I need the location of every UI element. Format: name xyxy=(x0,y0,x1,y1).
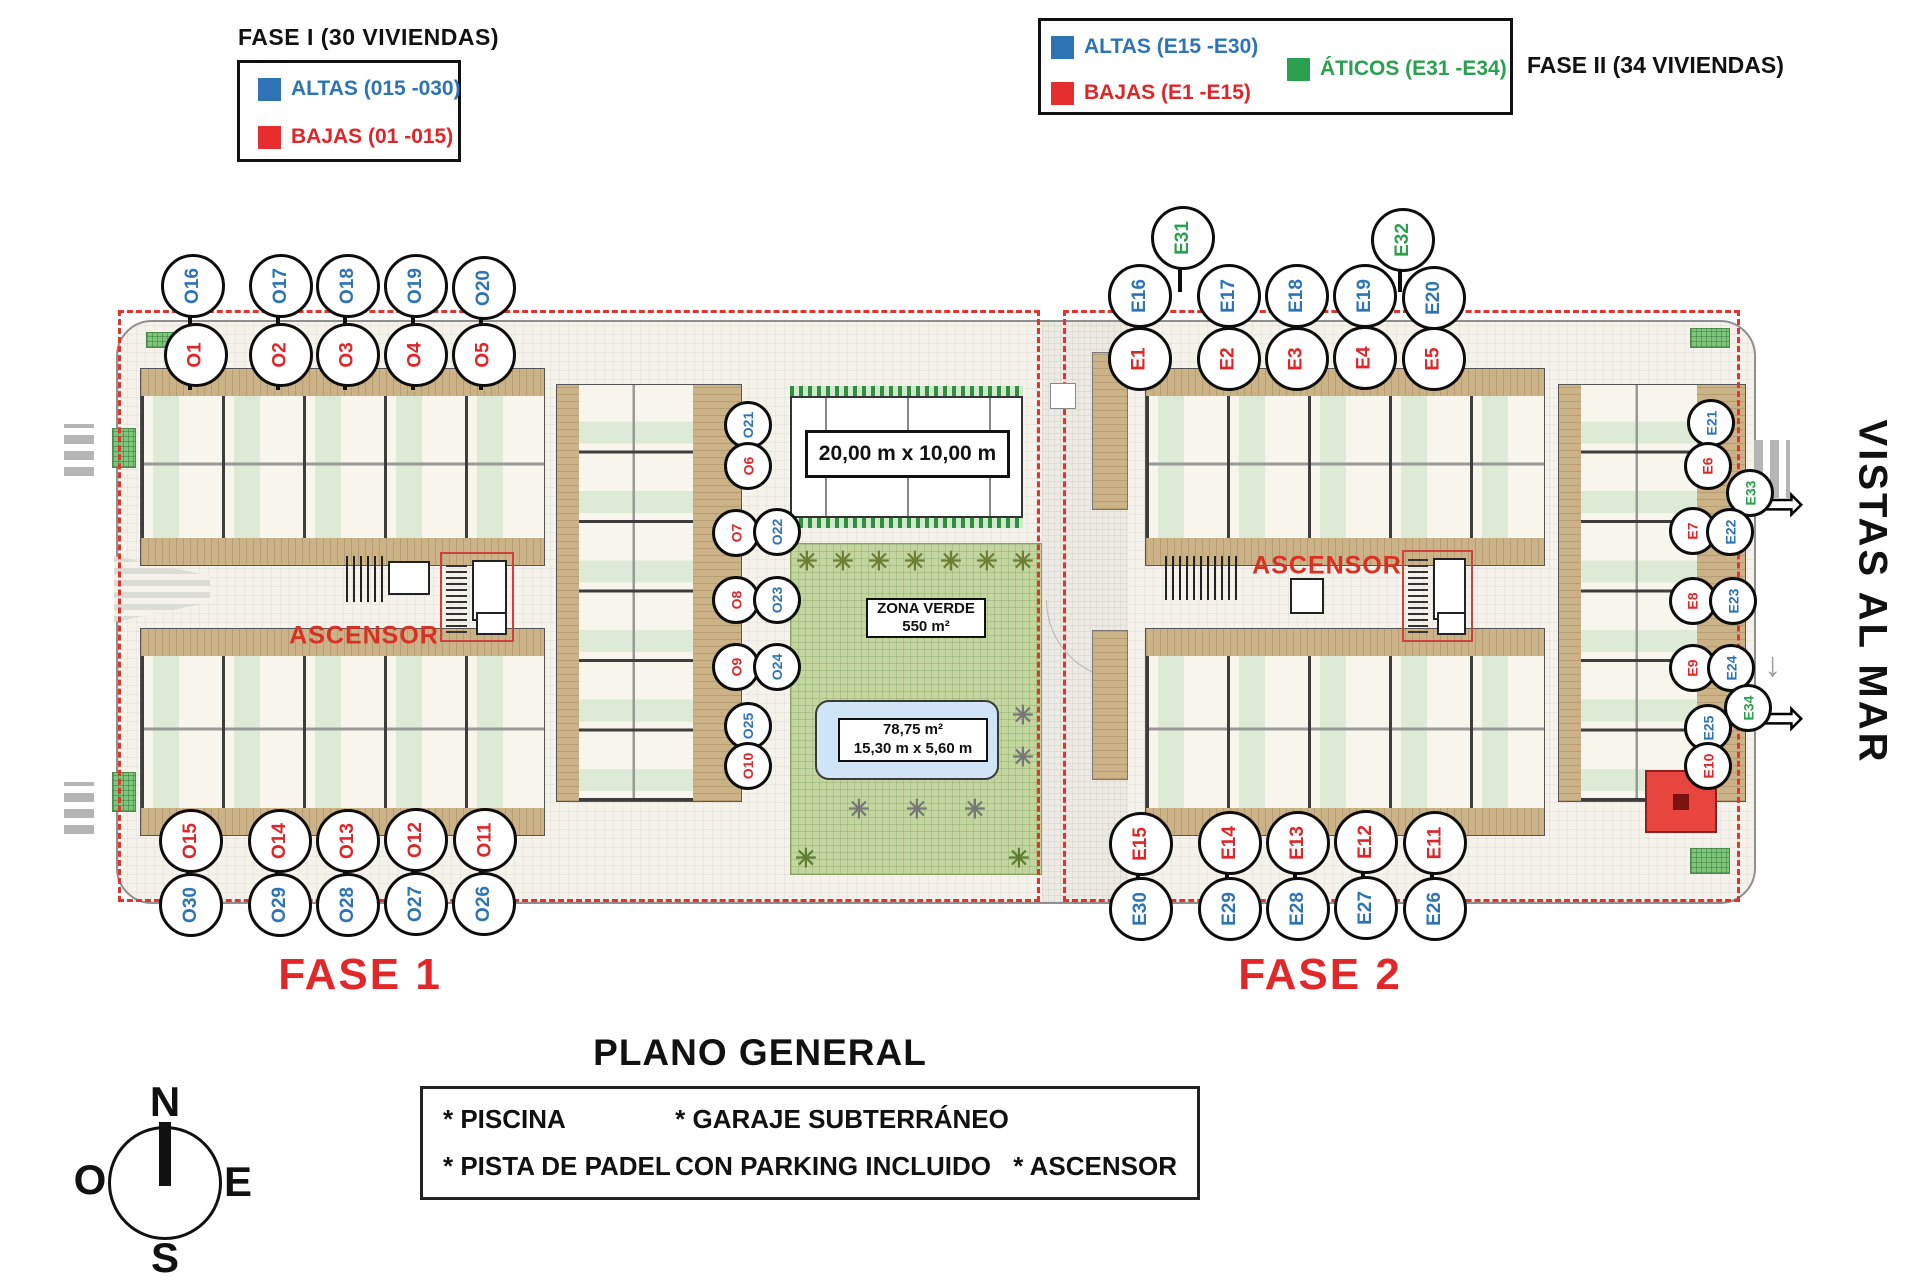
ascensor-label-fase2: ASCENSOR xyxy=(1252,552,1402,581)
amenity-piscina: * PISCINA xyxy=(443,1104,671,1135)
unit-circle-label: E25 xyxy=(1700,716,1716,741)
unit-circle-label: E24 xyxy=(1723,656,1739,681)
blue-square-icon xyxy=(258,78,281,101)
unit-circle-label: E30 xyxy=(1130,892,1152,926)
unit-circle-label: E26 xyxy=(1424,892,1446,926)
unit-circle-label: E1 xyxy=(1129,347,1151,370)
fase2-dashed-boundary xyxy=(1063,310,1740,902)
unit-circle-E27: E27 xyxy=(1334,876,1398,940)
unit-circle-label: O21 xyxy=(740,412,756,438)
unit-circle-label: E22 xyxy=(1722,520,1738,545)
unit-circle-label: E11 xyxy=(1424,827,1446,860)
zona-verde-label: ZONA VERDE 550 m² xyxy=(866,598,986,638)
unit-circle-O14: O14 xyxy=(248,809,312,873)
unit-circle-label: O4 xyxy=(405,342,427,367)
unit-circle-label: E21 xyxy=(1703,411,1719,436)
unit-circle-O3: O3 xyxy=(316,323,380,387)
unit-circle-E29: E29 xyxy=(1198,877,1262,941)
umbrella-icon: ✳ xyxy=(906,796,928,822)
crosswalk-icon xyxy=(64,424,94,476)
unit-circle-label: O3 xyxy=(337,342,359,367)
unit-circle-label: O5 xyxy=(473,342,495,367)
unit-circle-label: E19 xyxy=(1354,279,1376,313)
unit-circle-E19: E19 xyxy=(1333,264,1397,328)
unit-circle-label: O16 xyxy=(182,268,204,304)
unit-circle-O5: O5 xyxy=(452,323,516,387)
red-square-icon xyxy=(1051,82,1074,105)
unit-circle-label: E23 xyxy=(1725,589,1741,614)
unit-circle-label: E9 xyxy=(1685,659,1701,676)
unit-circle-label: O8 xyxy=(728,591,744,610)
unit-circle-label: O19 xyxy=(405,268,427,304)
unit-circle-label: E6 xyxy=(1700,457,1716,474)
unit-circle-E12: E12 xyxy=(1334,810,1398,874)
unit-circle-label: E8 xyxy=(1685,592,1701,609)
unit-circle-E17: E17 xyxy=(1197,264,1261,328)
legend-item-bajas-f1: BAJAS (01 -015) xyxy=(258,125,453,149)
unit-circle-label: O14 xyxy=(269,823,291,859)
zona-verde-area-value: 550 m² xyxy=(902,618,950,636)
legend-fase1-title: FASE I (30 VIVIENDAS) xyxy=(238,24,499,51)
unit-circle-label: E10 xyxy=(1700,754,1716,779)
tree-icon: ✳ xyxy=(796,548,818,574)
compass-south: S xyxy=(151,1234,179,1280)
down-arrow-icon: ↓ xyxy=(1764,648,1781,682)
unit-circle-E18: E18 xyxy=(1265,264,1329,328)
unit-circle-label: E16 xyxy=(1129,279,1151,313)
tree-icon: ✳ xyxy=(904,548,926,574)
ascensor-label-fase1: ASCENSOR xyxy=(289,622,439,651)
unit-circle-E4: E4 xyxy=(1333,326,1397,390)
amenity-padel: * PISTA DE PADEL xyxy=(443,1151,671,1182)
vistas-al-mar-label: VISTAS AL MAR xyxy=(1850,420,1895,765)
padel-dimensions-label: 20,00 m x 10,00 m xyxy=(805,430,1010,478)
unit-circle-label: E5 xyxy=(1423,347,1445,370)
unit-circle-label: E18 xyxy=(1286,279,1308,313)
unit-circle-label: E14 xyxy=(1219,826,1241,860)
unit-circle-label: E4 xyxy=(1354,346,1376,369)
unit-circle-E3: E3 xyxy=(1265,327,1329,391)
unit-circle-label: O28 xyxy=(337,887,359,923)
unit-circle-label: O20 xyxy=(473,270,495,306)
unit-circle-O23: O23 xyxy=(753,576,801,624)
tree-icon: ✳ xyxy=(940,548,962,574)
legend-item-altas-f1: ALTAS (015 -030) xyxy=(258,77,461,101)
unit-circle-O22: O22 xyxy=(753,508,801,556)
unit-circle-E10: E10 xyxy=(1684,742,1732,790)
unit-circle-O26: O26 xyxy=(452,872,516,936)
legend-label: ÁTICOS (E31 -E34) xyxy=(1320,57,1507,81)
amenities-box: * PISCINA * GARAJE SUBTERRÁNEO * PISTA D… xyxy=(420,1086,1200,1200)
palm-icon: ✳ xyxy=(795,845,817,871)
legend-label: BAJAS (E1 -E15) xyxy=(1084,81,1251,105)
unit-circle-O12: O12 xyxy=(384,808,448,872)
pool-area-value: 78,75 m² xyxy=(883,721,943,740)
unit-circle-E5: E5 xyxy=(1402,327,1466,391)
road-structure xyxy=(1050,383,1076,409)
site-plan-canvas: FASE I (30 VIVIENDAS) ALTAS (015 -030) B… xyxy=(0,0,1920,1280)
unit-circle-label: O22 xyxy=(769,519,785,545)
unit-circle-label: O1 xyxy=(185,342,207,367)
unit-circle-O27: O27 xyxy=(384,872,448,936)
unit-circle-label: O26 xyxy=(473,886,495,922)
legend-item-bajas-f2: BAJAS (E1 -E15) xyxy=(1051,81,1251,105)
legend-item-altas-f2: ALTAS (E15 -E30) xyxy=(1051,35,1258,59)
unit-circle-E31: E31 xyxy=(1151,206,1215,270)
unit-circle-O4: O4 xyxy=(384,323,448,387)
unit-circle-O20: O20 xyxy=(452,256,516,320)
unit-circle-label: E17 xyxy=(1218,279,1240,313)
umbrella-icon: ✳ xyxy=(1012,744,1034,770)
legend-fase2-box: ALTAS (E15 -E30) BAJAS (E1 -E15) ÁTICOS … xyxy=(1038,18,1513,115)
tree-icon: ✳ xyxy=(1012,548,1034,574)
unit-circle-E26: E26 xyxy=(1403,877,1467,941)
unit-circle-label: E29 xyxy=(1219,892,1241,926)
unit-circle-O17: O17 xyxy=(249,254,313,318)
amenity-parking: CON PARKING INCLUIDO xyxy=(675,1151,1009,1182)
unit-circle-label: E32 xyxy=(1392,223,1414,257)
unit-circle-O19: O19 xyxy=(384,254,448,318)
unit-circle-label: O17 xyxy=(270,268,292,304)
fase1-label: FASE 1 xyxy=(278,950,442,1000)
unit-circle-label: O30 xyxy=(180,887,202,923)
unit-circle-O28: O28 xyxy=(316,873,380,937)
umbrella-icon: ✳ xyxy=(848,796,870,822)
green-square-icon xyxy=(1287,58,1310,81)
tree-icon: ✳ xyxy=(868,548,890,574)
fase2-label: FASE 2 xyxy=(1238,950,1402,1000)
unit-circle-label: O29 xyxy=(269,887,291,923)
unit-circle-O10: O10 xyxy=(724,742,772,790)
legend-label: ALTAS (015 -030) xyxy=(291,77,461,101)
unit-circle-O18: O18 xyxy=(316,254,380,318)
umbrella-icon: ✳ xyxy=(964,796,986,822)
unit-circle-label: O13 xyxy=(337,823,359,859)
legend-label: BAJAS (01 -015) xyxy=(291,125,453,149)
unit-circle-O11: O11 xyxy=(453,808,517,872)
unit-circle-E16: E16 xyxy=(1108,264,1172,328)
padel-dimensions-text: 20,00 m x 10,00 m xyxy=(819,442,996,466)
unit-circle-label: O27 xyxy=(405,886,427,922)
amenity-empty xyxy=(1013,1104,1177,1135)
unit-circle-label: E7 xyxy=(1685,522,1701,539)
unit-circle-O30: O30 xyxy=(159,873,223,937)
pool-dimensions-label: 78,75 m² 15,30 m x 5,60 m xyxy=(838,718,988,762)
zona-verde-text: ZONA VERDE xyxy=(877,600,975,618)
compass-west: O xyxy=(74,1156,107,1204)
unit-circle-label: O12 xyxy=(405,822,427,858)
unit-circle-label: E12 xyxy=(1355,825,1377,859)
unit-circle-O24: O24 xyxy=(753,643,801,691)
unit-circle-E14: E14 xyxy=(1198,811,1262,875)
unit-circle-label: O7 xyxy=(728,524,744,543)
unit-circle-label: O24 xyxy=(769,654,785,680)
amenity-ascensor: * ASCENSOR xyxy=(1013,1151,1177,1182)
unit-circle-label: E28 xyxy=(1287,892,1309,926)
umbrella-icon: ✳ xyxy=(1012,702,1034,728)
compass-needle xyxy=(159,1122,171,1186)
page-title: PLANO GENERAL xyxy=(593,1032,927,1074)
unit-circle-label: E15 xyxy=(1130,827,1152,861)
unit-circle-label: E2 xyxy=(1218,347,1240,370)
unit-circle-E32: E32 xyxy=(1371,208,1435,272)
legend-fase2-side-label: FASE II (34 VIVIENDAS) xyxy=(1527,52,1784,79)
unit-circle-label: E33 xyxy=(1742,481,1758,506)
unit-circle-label: O25 xyxy=(740,713,756,739)
unit-circle-O1: O1 xyxy=(164,323,228,387)
unit-circle-label: O2 xyxy=(270,342,292,367)
pool-dimensions-text: 15,30 m x 5,60 m xyxy=(854,740,972,759)
unit-circle-O13: O13 xyxy=(316,809,380,873)
unit-circle-E20: E20 xyxy=(1402,266,1466,330)
unit-circle-label: E20 xyxy=(1423,281,1445,315)
unit-circle-E2: E2 xyxy=(1197,327,1261,391)
unit-circle-E23: E23 xyxy=(1709,577,1757,625)
tree-icon: ✳ xyxy=(976,548,998,574)
unit-circle-O16: O16 xyxy=(161,254,225,318)
palm-icon: ✳ xyxy=(1008,845,1030,871)
unit-circle-label: E3 xyxy=(1286,347,1308,370)
compass-east: E xyxy=(224,1158,252,1206)
unit-circle-O29: O29 xyxy=(248,873,312,937)
unit-circle-label: O9 xyxy=(728,658,744,677)
unit-circle-E30: E30 xyxy=(1109,877,1173,941)
unit-circle-E11: E11 xyxy=(1403,811,1467,875)
legend-fase1-box: ALTAS (015 -030) BAJAS (01 -015) xyxy=(237,60,461,162)
unit-circle-label: E31 xyxy=(1172,221,1194,255)
crosswalk-icon xyxy=(64,782,94,834)
unit-circle-E1: E1 xyxy=(1108,327,1172,391)
blue-square-icon xyxy=(1051,36,1074,59)
unit-circle-label: O18 xyxy=(337,268,359,304)
unit-circle-label: O11 xyxy=(474,823,496,858)
unit-circle-E13: E13 xyxy=(1266,811,1330,875)
unit-circle-label: E34 xyxy=(1740,696,1756,721)
tree-icon: ✳ xyxy=(832,548,854,574)
unit-circle-E21: E21 xyxy=(1687,399,1735,447)
red-square-icon xyxy=(258,126,281,149)
amenity-garaje: * GARAJE SUBTERRÁNEO xyxy=(675,1104,1009,1135)
unit-circle-O2: O2 xyxy=(249,323,313,387)
legend-item-aticos-f2: ÁTICOS (E31 -E34) xyxy=(1287,57,1507,81)
unit-circle-label: O23 xyxy=(769,587,785,613)
unit-circle-O15: O15 xyxy=(159,809,223,873)
compass-north: N xyxy=(150,1078,180,1126)
unit-circle-E22: E22 xyxy=(1706,508,1754,556)
legend-label: ALTAS (E15 -E30) xyxy=(1084,35,1258,59)
unit-circle-E15: E15 xyxy=(1109,812,1173,876)
unit-circle-O6: O6 xyxy=(724,442,772,490)
unit-circle-label: O15 xyxy=(180,823,202,859)
unit-circle-E6: E6 xyxy=(1684,442,1732,490)
unit-circle-E28: E28 xyxy=(1266,877,1330,941)
unit-circle-label: E13 xyxy=(1287,826,1309,860)
unit-circle-label: O6 xyxy=(740,457,756,476)
unit-circle-label: E27 xyxy=(1355,891,1377,925)
unit-circle-label: O10 xyxy=(740,753,756,779)
